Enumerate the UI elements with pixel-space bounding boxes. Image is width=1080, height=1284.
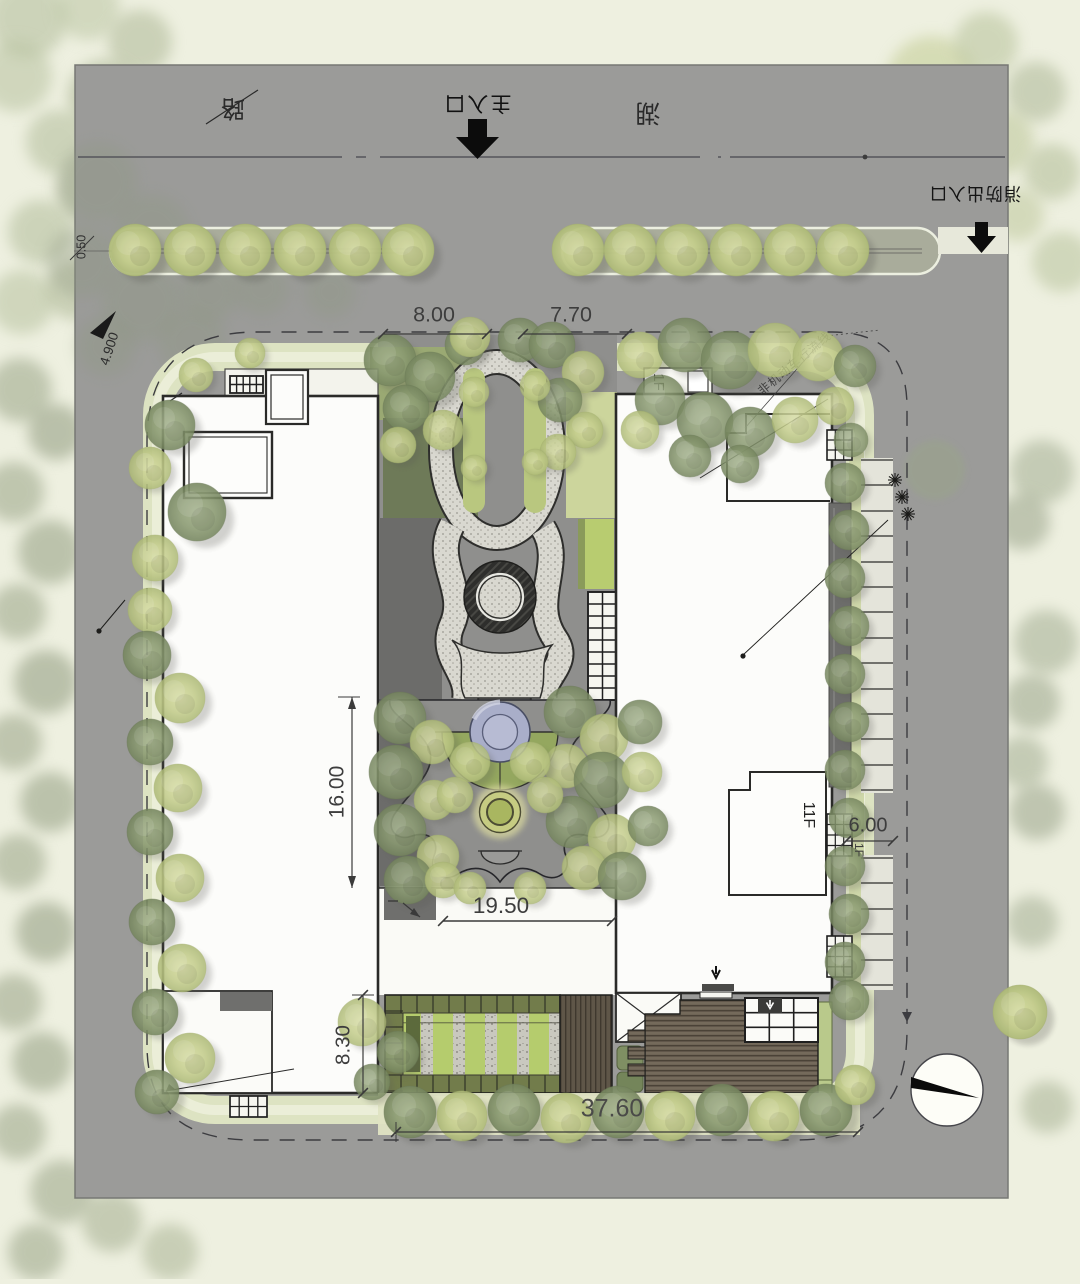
svg-text:37.60: 37.60 [581,1095,644,1123]
svg-text:1F: 1F [852,843,866,857]
svg-text:11F: 11F [800,802,817,829]
svg-text:湖: 湖 [635,98,660,126]
svg-text:路: 路 [221,95,245,122]
svg-text:消防出入口: 消防出入口 [929,183,1022,203]
svg-text:0.50: 0.50 [74,235,88,259]
svg-text:主入口: 主入口 [443,91,512,114]
svg-text:7.70: 7.70 [550,303,592,327]
svg-text:6.00: 6.00 [849,814,888,836]
svg-text:8.00: 8.00 [413,303,455,327]
svg-text:8.30: 8.30 [331,1025,354,1065]
svg-text:19.50: 19.50 [473,893,529,918]
svg-text:16.00: 16.00 [326,766,349,819]
